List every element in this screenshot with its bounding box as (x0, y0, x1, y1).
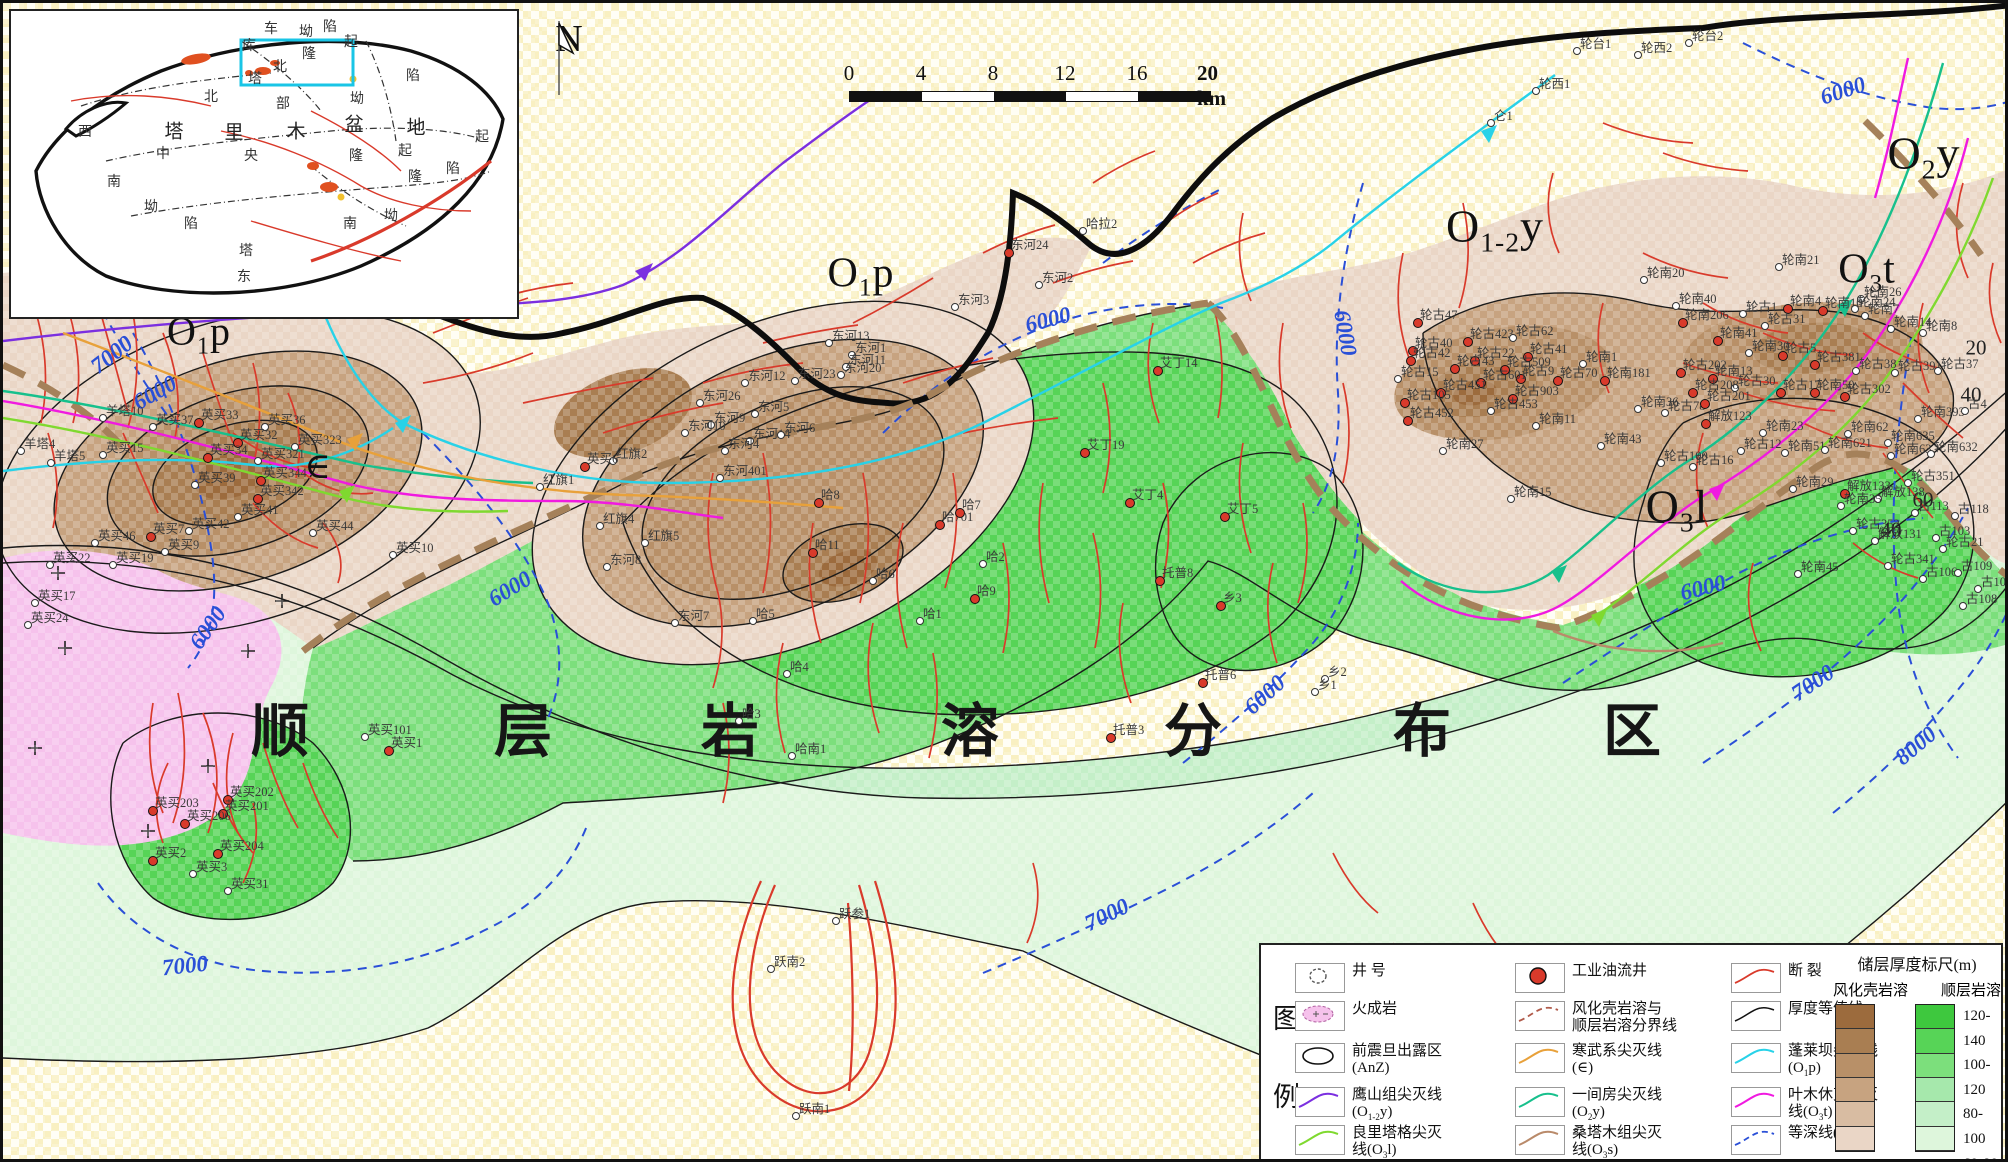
well-marker: 轮南7 (1861, 312, 1869, 320)
well-marker: 东河6 (777, 431, 785, 439)
well-label: 轮古12 (1744, 433, 1782, 452)
well-label: 英买33 (201, 404, 239, 423)
oil-well-marker: 哈9 (970, 594, 980, 604)
well-label: 轮古5 (1785, 337, 1816, 356)
well-label: 东河7 (678, 605, 709, 624)
well-label: 轮南45 (1801, 556, 1839, 575)
well-label: 英买3 (196, 856, 227, 875)
well-label: 乡1 (1318, 674, 1337, 693)
well-label: 羊塔10 (106, 400, 144, 419)
oil-well-marker: 英买1 (384, 746, 394, 756)
well-label: 东河20 (844, 357, 882, 376)
well-label: 东河26 (703, 385, 741, 404)
well-label: 东河6 (784, 417, 815, 436)
oil-well-marker: 英买34 (203, 453, 213, 463)
inset-label: 陷 (323, 16, 337, 36)
oil-well-marker: 轮南181 (1600, 376, 1610, 386)
well-label: 仑1 (1494, 105, 1513, 124)
line-tan-icon (1515, 1125, 1565, 1155)
inset-label: 塔 (164, 117, 183, 144)
well-marker: 英买24 (24, 621, 32, 629)
well-label: 古106 (1926, 561, 1957, 580)
well-label: 轮古302 (1847, 378, 1891, 397)
well-label: 轮古42 (1413, 342, 1451, 361)
well-label: 红旗4 (603, 508, 634, 527)
well-marker: 英买37 (149, 423, 157, 431)
legend-item-label: 火成岩 (1352, 1001, 1397, 1018)
well-label: 英买1 (391, 732, 422, 751)
well-label: 艾丁14 (1160, 352, 1198, 371)
well-label: 轮古47 (1420, 304, 1458, 323)
legend-item: 工业油流井 (1515, 963, 1647, 993)
oil-well-marker: 哈11 (808, 548, 818, 558)
inset-label: 盆 (344, 110, 363, 137)
well-marker: 轮南621 (1821, 446, 1829, 454)
inset-label: 中 (156, 143, 170, 163)
legend-item: 断 裂 (1731, 963, 1822, 993)
well-label: 轮古37 (1941, 353, 1979, 372)
well-marker: 英买321 (254, 457, 262, 465)
region-label: O1-2y (1446, 199, 1544, 258)
inset-label: 部 (276, 93, 290, 113)
well-marker: 东河20 (837, 371, 845, 379)
scale-left-header: 风化壳岩溶 (1833, 979, 1908, 1000)
region-label: ∈ (304, 445, 332, 487)
well-label: 托普6 (1205, 664, 1236, 683)
well-label: 解放131 (1878, 523, 1922, 542)
inset-label: 起 (398, 140, 412, 160)
legend-item-label: 断 裂 (1788, 963, 1822, 980)
well-marker: 轮台1 (1573, 47, 1581, 55)
legend-item-label: 风化壳岩溶与顺层岩溶分界线 (1572, 1001, 1677, 1035)
well-marker: 古106 (1919, 575, 1927, 583)
oil-well-marker: 英买33 (194, 418, 204, 428)
well-marker: 英买44 (309, 529, 317, 537)
well-label: 英买204 (220, 835, 264, 854)
well-label: 英买42 (192, 513, 230, 532)
well-marker: 英买31 (224, 887, 232, 895)
well-label: 哈拉2 (1086, 213, 1117, 232)
well-label: 轮南63 (1894, 438, 1932, 457)
well-marker: 东河3 (951, 303, 959, 311)
well-label: 轮古16 (1696, 449, 1734, 468)
well-marker: 英买39 (191, 481, 199, 489)
well-label: 轮南15 (1514, 481, 1552, 500)
well-label: 东河24 (1011, 234, 1049, 253)
well-marker: 英买10 (389, 551, 397, 559)
region-label: O2y (1887, 126, 1960, 185)
map-title-char: 溶 (941, 684, 999, 768)
well-marker: 红旗5 (641, 539, 649, 547)
oil-well-marker: 托普6 (1198, 678, 1208, 688)
scalebar-tick: 16 (1127, 61, 1148, 86)
well-label: 东河5 (758, 396, 789, 415)
well-label: 轮南206 (1685, 304, 1729, 323)
well-marker: 轮古391 (1891, 369, 1899, 377)
oil-well-marker: 轮古5 (1778, 351, 1788, 361)
well-marker: 轮古1 (1739, 310, 1747, 318)
inset-label: 东 (237, 266, 251, 286)
oil-well-marker: 轮南206 (1678, 318, 1688, 328)
oil-well-marker: 哈7 (955, 508, 965, 518)
line-magenta-icon (1731, 1087, 1781, 1117)
inset-label: 北 (204, 86, 218, 106)
well-marker: 轮南393 (1914, 415, 1922, 423)
inset-label: 塔 (239, 240, 253, 260)
scale-right-header: 顺层岩溶 (1941, 979, 2001, 1000)
well-marker: 轮南30 (1745, 349, 1753, 357)
well-label: 东河4 (728, 433, 759, 452)
well-marker: 羊塔5 (47, 459, 55, 467)
well-label: 轮古9 (1523, 360, 1554, 379)
oil-well-marker: 托普3 (1106, 733, 1116, 743)
well-label: 跃参1 (839, 903, 870, 922)
well-marker: 轮古78 (1661, 409, 1669, 417)
well-marker: 英买9 (161, 548, 169, 556)
well-marker: 跃南2 (767, 965, 775, 973)
oil-well-marker: 轮古105 (1400, 398, 1410, 408)
oil-well-marker: 轮古47 (1413, 318, 1423, 328)
line-thickness-icon (1731, 1001, 1781, 1031)
well-label: 红旗5 (648, 525, 679, 544)
well-marker: 轮古453 (1487, 407, 1495, 415)
inset-label: 里 (224, 118, 243, 145)
well-marker: 轮南40 (1672, 302, 1680, 310)
well-marker: 古103 (1932, 534, 1940, 542)
well-label: 轮古423 (1470, 323, 1514, 342)
well-label: 轮南4 (1790, 290, 1821, 309)
well-marker: 英买15 (99, 451, 107, 459)
legend-item-label: 一间房尖灭线(O2y) (1572, 1087, 1662, 1126)
legend-item-label: 良里塔格尖灭线(O3l) (1352, 1125, 1442, 1162)
legend-item: 一间房尖灭线(O2y) (1515, 1087, 1662, 1126)
well-marker: 东河12 (741, 379, 749, 387)
well-marker: 哈1 (916, 617, 924, 625)
oil-well-marker: 轮古43 (1450, 364, 1460, 374)
well-marker: 轮南632 (1927, 450, 1935, 458)
oil-well-marker: 轮古70 (1553, 376, 1563, 386)
well-label: 轮南43 (1604, 428, 1642, 447)
inset-label: 隆 (349, 145, 363, 165)
well-label: 英买321 (261, 443, 305, 462)
well-marker: 轮南24 (1851, 305, 1859, 313)
well-label: 哈3 (742, 703, 761, 722)
well-label: 东河401 (723, 460, 767, 479)
well-label: 轮南51 (1788, 435, 1826, 454)
well-label: 哈9 (977, 580, 996, 599)
well-marker: 古109 (1954, 569, 1962, 577)
well-label: 轮南11 (1539, 408, 1576, 427)
well-label: 托普8 (1162, 562, 1193, 581)
oil-well-marker: 乡3 (1216, 601, 1226, 611)
scalebar-bar (849, 91, 1211, 102)
well-label: 轮古453 (1494, 393, 1538, 412)
well-marker: 轮南51 (1781, 449, 1789, 457)
well-label: 托普3 (1113, 719, 1144, 738)
well-label: 英买2 (155, 842, 186, 861)
well-marker: 轮南29 (1789, 485, 1797, 493)
well-marker: 轮南635 (1884, 439, 1892, 447)
well-label: 解放123 (1708, 405, 1752, 424)
oil-well-marker: 英买203 (148, 806, 158, 816)
well-marker: 轮南21 (1775, 263, 1783, 271)
oil-well-marker: 轮南10 (1818, 306, 1828, 316)
well-marker: 轮南14 (1887, 325, 1895, 333)
legend-item-label: 前震旦出露区(AnZ) (1352, 1043, 1442, 1077)
map-title-char: 顺 (251, 684, 309, 768)
well-marker: 轮古100 (1657, 459, 1665, 467)
well-label: 哈6 (876, 563, 895, 582)
inset-label: 西 (78, 121, 92, 141)
well-label: 英买31 (231, 873, 269, 892)
well-marker: 红旗4 (596, 522, 604, 530)
well-marker: 东河26 (696, 399, 704, 407)
well-marker: 古113 (1911, 509, 1919, 517)
well-marker: 东河5 (751, 410, 759, 418)
map-title-char: 分 (1164, 684, 1222, 768)
oil-well-marker: 轮古17 (1776, 388, 1786, 398)
oil-well-marker: 英买6 (580, 462, 590, 472)
well-marker: 哈5 (749, 617, 757, 625)
well-label: 乡3 (1223, 587, 1242, 606)
well-marker: 轮西1 (1532, 87, 1540, 95)
well-label: 英买46 (98, 525, 136, 544)
circle-oil-icon (1515, 963, 1565, 993)
well-label: 轮台2 (1692, 25, 1723, 44)
well-marker: 解放131 (1871, 537, 1879, 545)
well-label: 轮古381 (1817, 346, 1861, 365)
well-label: 轮古105 (1407, 384, 1451, 403)
legend-item: 桑塔木组尖灭线(O3s) (1515, 1125, 1662, 1162)
oil-well-marker: 轮古208 (1688, 388, 1698, 398)
well-marker: 东河8 (603, 563, 611, 571)
anz-icon (1295, 1043, 1345, 1073)
well-label: 英买342 (260, 480, 304, 499)
well-marker: 英买19 (109, 561, 117, 569)
map-title-char: 岩 (701, 684, 759, 768)
inset-label: 陷 (446, 158, 460, 178)
well-marker: 轮南1 (1579, 360, 1587, 368)
scalebar-tick: 8 (988, 61, 999, 86)
oil-well-marker: 哈8 (814, 498, 824, 508)
legend-item-label: 桑塔木组尖灭线(O3s) (1572, 1125, 1662, 1162)
well-marker: 轮南36 (1634, 405, 1642, 413)
well-label: 东河23 (798, 363, 836, 382)
well-label: 哈8 (821, 484, 840, 503)
oil-well-marker: 艾丁14 (1153, 366, 1163, 376)
well-marker: 英买17 (31, 599, 39, 607)
scalebar-tick: 12 (1055, 61, 1076, 86)
well-label: 轮南20 (1647, 262, 1685, 281)
well-label: 哈1 (923, 603, 942, 622)
oil-well-marker: 英买7 (146, 532, 156, 542)
well-label: 哈11 (815, 534, 840, 553)
well-label: 英买201 (225, 795, 269, 814)
inset-label: 库 (242, 35, 256, 55)
oil-well-marker: 艾丁5 (1220, 512, 1230, 522)
line-cyan-icon (1731, 1043, 1781, 1073)
well-label: 英买6 (587, 448, 618, 467)
well-label: 红旗2 (616, 443, 647, 462)
well-marker: 哈3 (735, 717, 743, 725)
oil-well-marker: 轮古452 (1403, 416, 1413, 426)
well-marker: 英买101 (361, 733, 369, 741)
well-label: 轮南181 (1607, 362, 1651, 381)
well-label: 英买39 (198, 467, 236, 486)
depth-contour-label: 7000 (161, 951, 209, 982)
well-label: 英买344 (263, 462, 307, 481)
well-label: 古118 (1958, 498, 1989, 517)
legend-item-label: 寒武系尖灭线(∈) (1572, 1043, 1662, 1077)
well-label: 轮南8 (1926, 315, 1957, 334)
well-label: 轮西1 (1539, 73, 1570, 92)
well-marker: 东河7 (671, 619, 679, 627)
well-label: 轮台1 (1580, 33, 1611, 52)
line-divide-icon (1515, 1001, 1565, 1031)
well-label: 东河2 (1042, 267, 1073, 286)
legend-item: 井 号 (1295, 963, 1386, 993)
scalebar-tick: 4 (916, 61, 927, 86)
well-marker: 仑1 (1487, 119, 1495, 127)
oil-well-marker: 解放123 (1701, 419, 1711, 429)
well-label: 古108 (1966, 588, 1997, 607)
map-title-char: 区 (1603, 684, 1661, 768)
well-marker: 古108 (1959, 602, 1967, 610)
thickness-scale: 储层厚度标尺(m)风化壳岩溶顺层岩溶120-140100-12080-10060… (1833, 951, 2001, 1152)
well-label: 轮南632 (1934, 436, 1978, 455)
well-label: 英买15 (106, 437, 144, 456)
well-marker: 轮南20 (1640, 276, 1648, 284)
map-title-char: 布 (1393, 684, 1451, 768)
well-label: 英买37 (156, 409, 194, 428)
scale-bar: 048121620 km (849, 61, 1269, 107)
well-marker: 轮南45 (1794, 570, 1802, 578)
well-marker: 轮古31 (1761, 322, 1769, 330)
well-marker: 东河10 (681, 429, 689, 437)
well-label: 东河12 (748, 365, 786, 384)
well-label: 轮古202 (1683, 354, 1727, 373)
inset-label: 塔 (248, 68, 262, 88)
inset-label: 隆 (408, 166, 422, 186)
legend-item-label: 鹰山组尖灭线(O1-2y) (1352, 1087, 1442, 1126)
well-marker: 轮西2 (1634, 51, 1642, 59)
oil-well-marker: 轮古423 (1463, 337, 1473, 347)
well-marker: 轮南35 (1837, 502, 1845, 510)
well-label: 哈2 (986, 546, 1005, 565)
inset-label: 车 (264, 18, 278, 38)
legend-item: 鹰山组尖灭线(O1-2y) (1295, 1087, 1442, 1126)
well-label: 艾丁19 (1087, 434, 1125, 453)
well-marker: 轮古341 (1884, 562, 1892, 570)
well-marker: 轮古352 (1849, 527, 1857, 535)
well-label: 古4 (1968, 393, 1987, 412)
well-label: 轮古21 (1946, 531, 1984, 550)
line-purple-icon (1295, 1087, 1345, 1117)
well-marker: 东河2 (1035, 281, 1043, 289)
well-label: 轮古15 (1401, 361, 1439, 380)
oil-well-marker: 英买206 (180, 819, 190, 829)
well-marker: 轮古21 (1939, 545, 1947, 553)
well-label: 英买10 (396, 537, 434, 556)
well-label: 跃南2 (774, 951, 805, 970)
well-label: 哈7 (962, 494, 981, 513)
scalebar-end-label: 20 km (1197, 61, 1245, 111)
inset-label: 南 (343, 213, 357, 233)
scalebar-tick: 0 (844, 61, 855, 86)
well-label: 轮南29 (1796, 471, 1834, 490)
line-teal-icon (1515, 1087, 1565, 1117)
well-label: 轮南23 (1766, 415, 1804, 434)
oil-well-marker: 哈701 (935, 520, 945, 530)
well-marker: 轮南27 (1439, 447, 1447, 455)
inset-label: 坳 (384, 205, 398, 225)
oil-well-marker: 英买2 (148, 856, 158, 866)
well-label: 英买24 (31, 607, 69, 626)
karst-distribution-map: O1pO1pO1-2yO2yO3tO3l∈顺层岩溶分布区700060006000… (0, 0, 2008, 1162)
well-label: 东河8 (610, 549, 641, 568)
well-label: 轮南35 (1844, 488, 1882, 507)
inset-label: 陷 (184, 213, 198, 233)
well-marker: 红旗1 (536, 483, 544, 491)
well-label: 英买9 (168, 534, 199, 553)
well-marker: 轮南15 (1507, 495, 1515, 503)
well-marker: 古118 (1951, 512, 1959, 520)
well-marker: 跃南1 (792, 1112, 800, 1120)
well-label: 英买34 (210, 439, 248, 458)
well-marker: 羊塔4 (17, 447, 25, 455)
legend-item: 火成岩 (1295, 1001, 1397, 1031)
well-marker: 英买22 (46, 561, 54, 569)
well-label: 轮古62 (1516, 320, 1554, 339)
well-label: 东河3 (958, 289, 989, 308)
well-label: 英买17 (38, 585, 76, 604)
well-marker: 东河401 (716, 474, 724, 482)
inset-label: 坳 (144, 196, 158, 216)
region-label: O1p (828, 249, 895, 302)
well-label: 英买19 (116, 547, 154, 566)
inset-label: 央 (244, 145, 258, 165)
well-marker: 乡1 (1311, 688, 1319, 696)
oil-well-marker: 轮南50 (1810, 388, 1820, 398)
legend-item: 寒武系尖灭线(∈) (1515, 1043, 1662, 1077)
legend-item: 良里塔格尖灭线(O3l) (1295, 1125, 1442, 1162)
well-label: 哈南1 (795, 738, 826, 757)
line-orange-icon (1515, 1043, 1565, 1073)
well-marker: 英买46 (91, 539, 99, 547)
well-marker: 东河4 (721, 447, 729, 455)
inset-label: 坳 (350, 88, 364, 108)
well-marker: 英买41 (234, 513, 242, 521)
well-label: 艾丁4 (1132, 484, 1163, 503)
weathering-scale-bar (1835, 1004, 1875, 1152)
well-label: 哈4 (790, 656, 809, 675)
north-arrow: N (539, 17, 599, 61)
inset-label: 北 (273, 56, 287, 76)
well-marker: 轮南8 (1919, 329, 1927, 337)
well-label: 轮西2 (1641, 37, 1672, 56)
well-marker: 哈南1 (788, 752, 796, 760)
well-marker: 哈6 (869, 577, 877, 585)
line-depth-icon (1731, 1125, 1781, 1155)
oil-well-marker: 轮南41 (1713, 336, 1723, 346)
map-title-char: 层 (494, 684, 552, 768)
line-fault-icon (1731, 963, 1781, 993)
well-marker: 跃参1 (832, 917, 840, 925)
inset-label: 隆 (302, 43, 316, 63)
well-label: 轮古31 (1768, 308, 1806, 327)
well-label: 跃南1 (799, 1098, 830, 1117)
scale-range-labels: 120-140100-12080-10060-8040-6020-40 (1963, 1004, 2001, 1162)
